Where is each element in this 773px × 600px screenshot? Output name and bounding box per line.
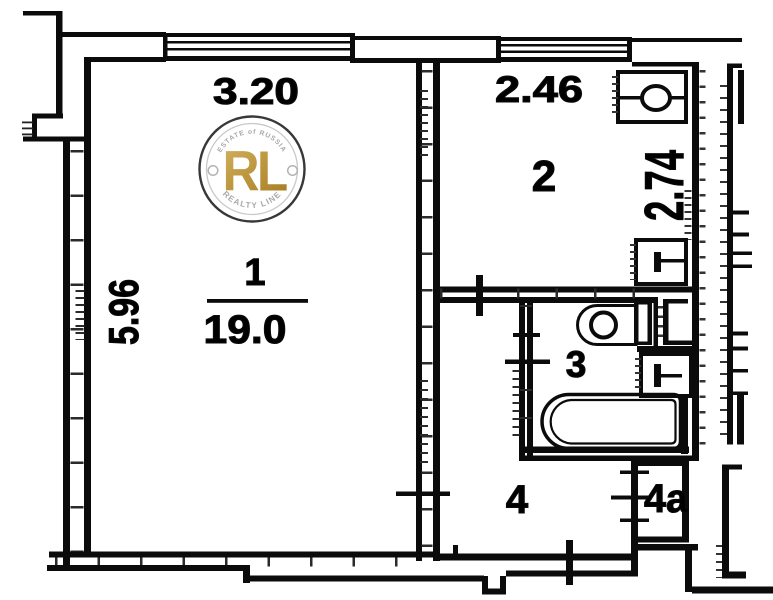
svg-text:RL: RL [223, 140, 288, 204]
svg-text:1: 1 [244, 252, 265, 294]
svg-text:2.46: 2.46 [495, 69, 583, 110]
svg-text:4a: 4a [644, 477, 689, 521]
svg-text:19.0: 19.0 [204, 308, 287, 352]
svg-text:3: 3 [566, 344, 587, 385]
svg-text:2.74: 2.74 [633, 150, 695, 221]
svg-text:4: 4 [506, 478, 529, 522]
svg-text:3.20: 3.20 [213, 71, 299, 112]
svg-text:5.96: 5.96 [100, 279, 147, 345]
svg-text:2: 2 [532, 152, 556, 201]
